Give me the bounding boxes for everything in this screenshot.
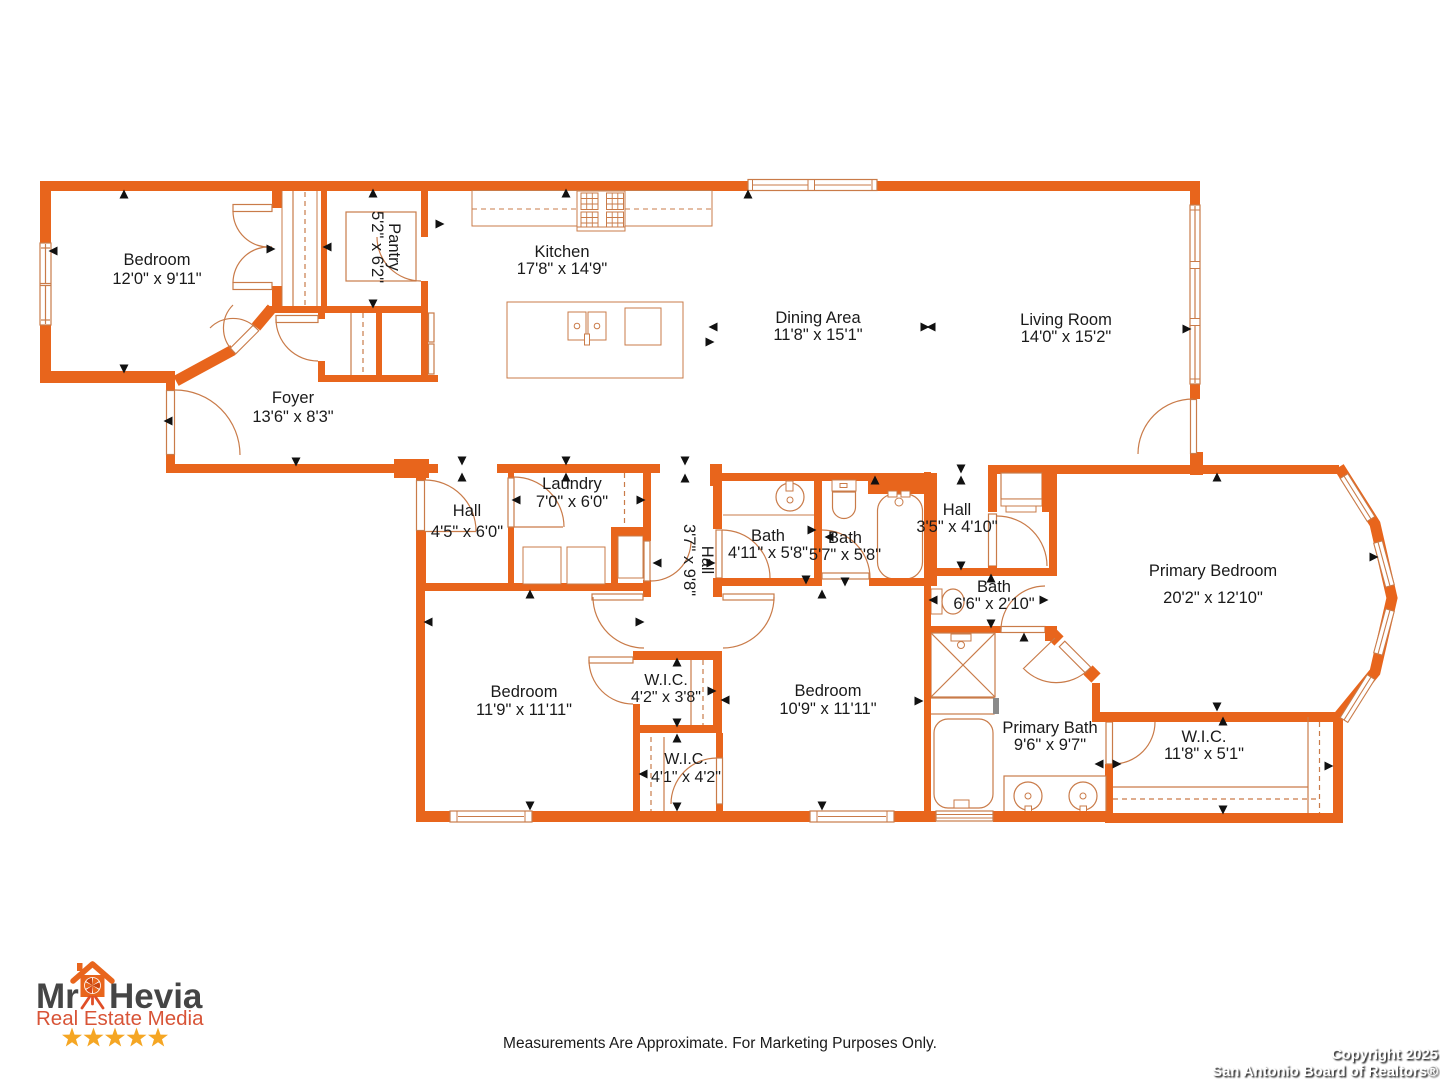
svg-text:5'7" x 5'8": 5'7" x 5'8" xyxy=(809,546,881,564)
svg-text:Foyer: Foyer xyxy=(272,389,315,407)
svg-text:6'6" x 2'10": 6'6" x 2'10" xyxy=(953,595,1034,613)
svg-text:10'9" x 11'11": 10'9" x 11'11" xyxy=(779,700,876,718)
svg-text:Pantry: Pantry xyxy=(385,223,403,271)
svg-text:Kitchen: Kitchen xyxy=(534,243,589,261)
svg-text:Hall: Hall xyxy=(453,502,481,520)
svg-text:11'9" x 11'11": 11'9" x 11'11" xyxy=(476,701,572,719)
svg-text:Hall: Hall xyxy=(943,501,971,519)
svg-text:Real Estate Media: Real Estate Media xyxy=(36,1007,204,1030)
svg-text:Laundry: Laundry xyxy=(542,475,602,493)
svg-text:Primary Bath: Primary Bath xyxy=(1002,719,1097,737)
svg-text:5'2" x 6'2": 5'2" x 6'2" xyxy=(368,211,386,283)
svg-text:San Antonio Board of Realtors®: San Antonio Board of Realtors® xyxy=(1212,1064,1438,1080)
svg-text:Bedroom: Bedroom xyxy=(124,251,191,269)
svg-text:Measurements Are Approximate.: Measurements Are Approximate. For Market… xyxy=(503,1035,937,1052)
svg-text:4'5" x 6'0": 4'5" x 6'0" xyxy=(431,523,503,541)
svg-text:Bedroom: Bedroom xyxy=(795,682,862,700)
svg-text:4'2" x 3'8": 4'2" x 3'8" xyxy=(631,689,701,706)
svg-text:11'8" x 5'1": 11'8" x 5'1" xyxy=(1164,745,1244,763)
svg-text:Copyright 2025: Copyright 2025 xyxy=(1331,1047,1438,1063)
svg-text:W.I.C.: W.I.C. xyxy=(644,672,688,689)
svg-text:W.I.C.: W.I.C. xyxy=(1182,728,1227,746)
svg-text:3'7" x 9'8": 3'7" x 9'8" xyxy=(680,524,698,596)
svg-text:4'11" x 5'8": 4'11" x 5'8" xyxy=(728,544,808,562)
svg-text:12'0" x 9'11": 12'0" x 9'11" xyxy=(112,270,201,288)
svg-text:17'8" x 14'9": 17'8" x 14'9" xyxy=(517,260,608,278)
svg-text:9'6" x 9'7": 9'6" x 9'7" xyxy=(1014,736,1086,754)
svg-text:7'0" x 6'0": 7'0" x 6'0" xyxy=(536,493,608,511)
svg-text:Living Room: Living Room xyxy=(1020,311,1112,329)
svg-text:Bedroom: Bedroom xyxy=(491,683,558,701)
svg-text:Dining Area: Dining Area xyxy=(775,309,861,327)
svg-text:W.I.C.: W.I.C. xyxy=(664,751,708,768)
svg-text:20'2" x 12'10": 20'2" x 12'10" xyxy=(1163,589,1263,607)
svg-text:4'1" x 4'2": 4'1" x 4'2" xyxy=(651,769,721,786)
svg-text:13'6" x 8'3": 13'6" x 8'3" xyxy=(252,408,333,426)
svg-text:3'5" x 4'10": 3'5" x 4'10" xyxy=(916,518,997,536)
svg-text:Bath: Bath xyxy=(751,527,785,545)
svg-text:11'8" x 15'1": 11'8" x 15'1" xyxy=(773,326,862,344)
svg-text:Primary Bedroom: Primary Bedroom xyxy=(1149,562,1277,580)
svg-text:14'0" x 15'2": 14'0" x 15'2" xyxy=(1021,328,1112,346)
